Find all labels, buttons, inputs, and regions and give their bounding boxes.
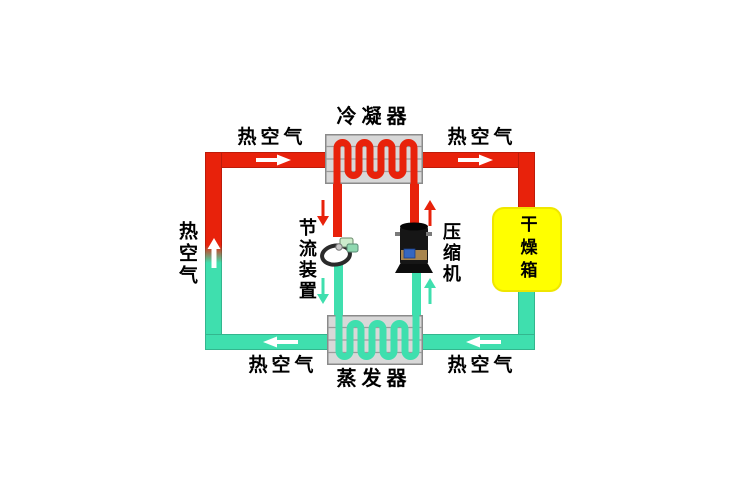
drying-box: 干燥箱 (492, 207, 562, 292)
hot-flow-up-arrow-icon (422, 199, 438, 226)
air-flow-up-arrow-left-icon (207, 238, 221, 268)
hot-air-label-top-left: 热空气 (237, 128, 306, 148)
diagram-canvas: 干燥箱 冷凝器 (0, 0, 750, 500)
air-flow-left-arrow-bottom-left-icon (262, 336, 298, 348)
refrigerant-pipe-throttle-to-evaporator (334, 264, 343, 315)
evaporator-box (327, 315, 423, 365)
air-flow-right-arrow-top-left-icon (256, 154, 292, 166)
hot-flow-down-arrow-icon (315, 200, 331, 227)
refrigerant-pipe-condenser-to-throttle (333, 184, 342, 237)
hot-air-label-top-right: 热空气 (447, 128, 516, 148)
condenser-box (325, 134, 423, 184)
air-flow-right-arrow-top-right-icon (458, 154, 494, 166)
condenser-label: 冷凝器 (337, 106, 412, 127)
hot-air-label-bottom-left: 热空气 (248, 356, 317, 376)
hot-air-label-bottom-right: 热空气 (447, 356, 516, 376)
cold-flow-down-arrow-icon (315, 278, 331, 305)
hot-air-label-left-side: 热空气 (176, 221, 196, 287)
throttle-device-icon (317, 235, 361, 269)
throttle-device-label: 节流装置 (296, 218, 315, 302)
cold-flow-up-arrow-icon (422, 277, 438, 304)
compressor-icon (396, 220, 434, 276)
refrigerant-pipe-evaporator-to-compressor (412, 272, 421, 315)
air-flow-left-arrow-bottom-right-icon (465, 336, 501, 348)
compressor-label: 压缩机 (440, 222, 459, 285)
evaporator-label: 蒸发器 (337, 368, 412, 389)
drying-box-label: 干燥箱 (515, 215, 540, 284)
